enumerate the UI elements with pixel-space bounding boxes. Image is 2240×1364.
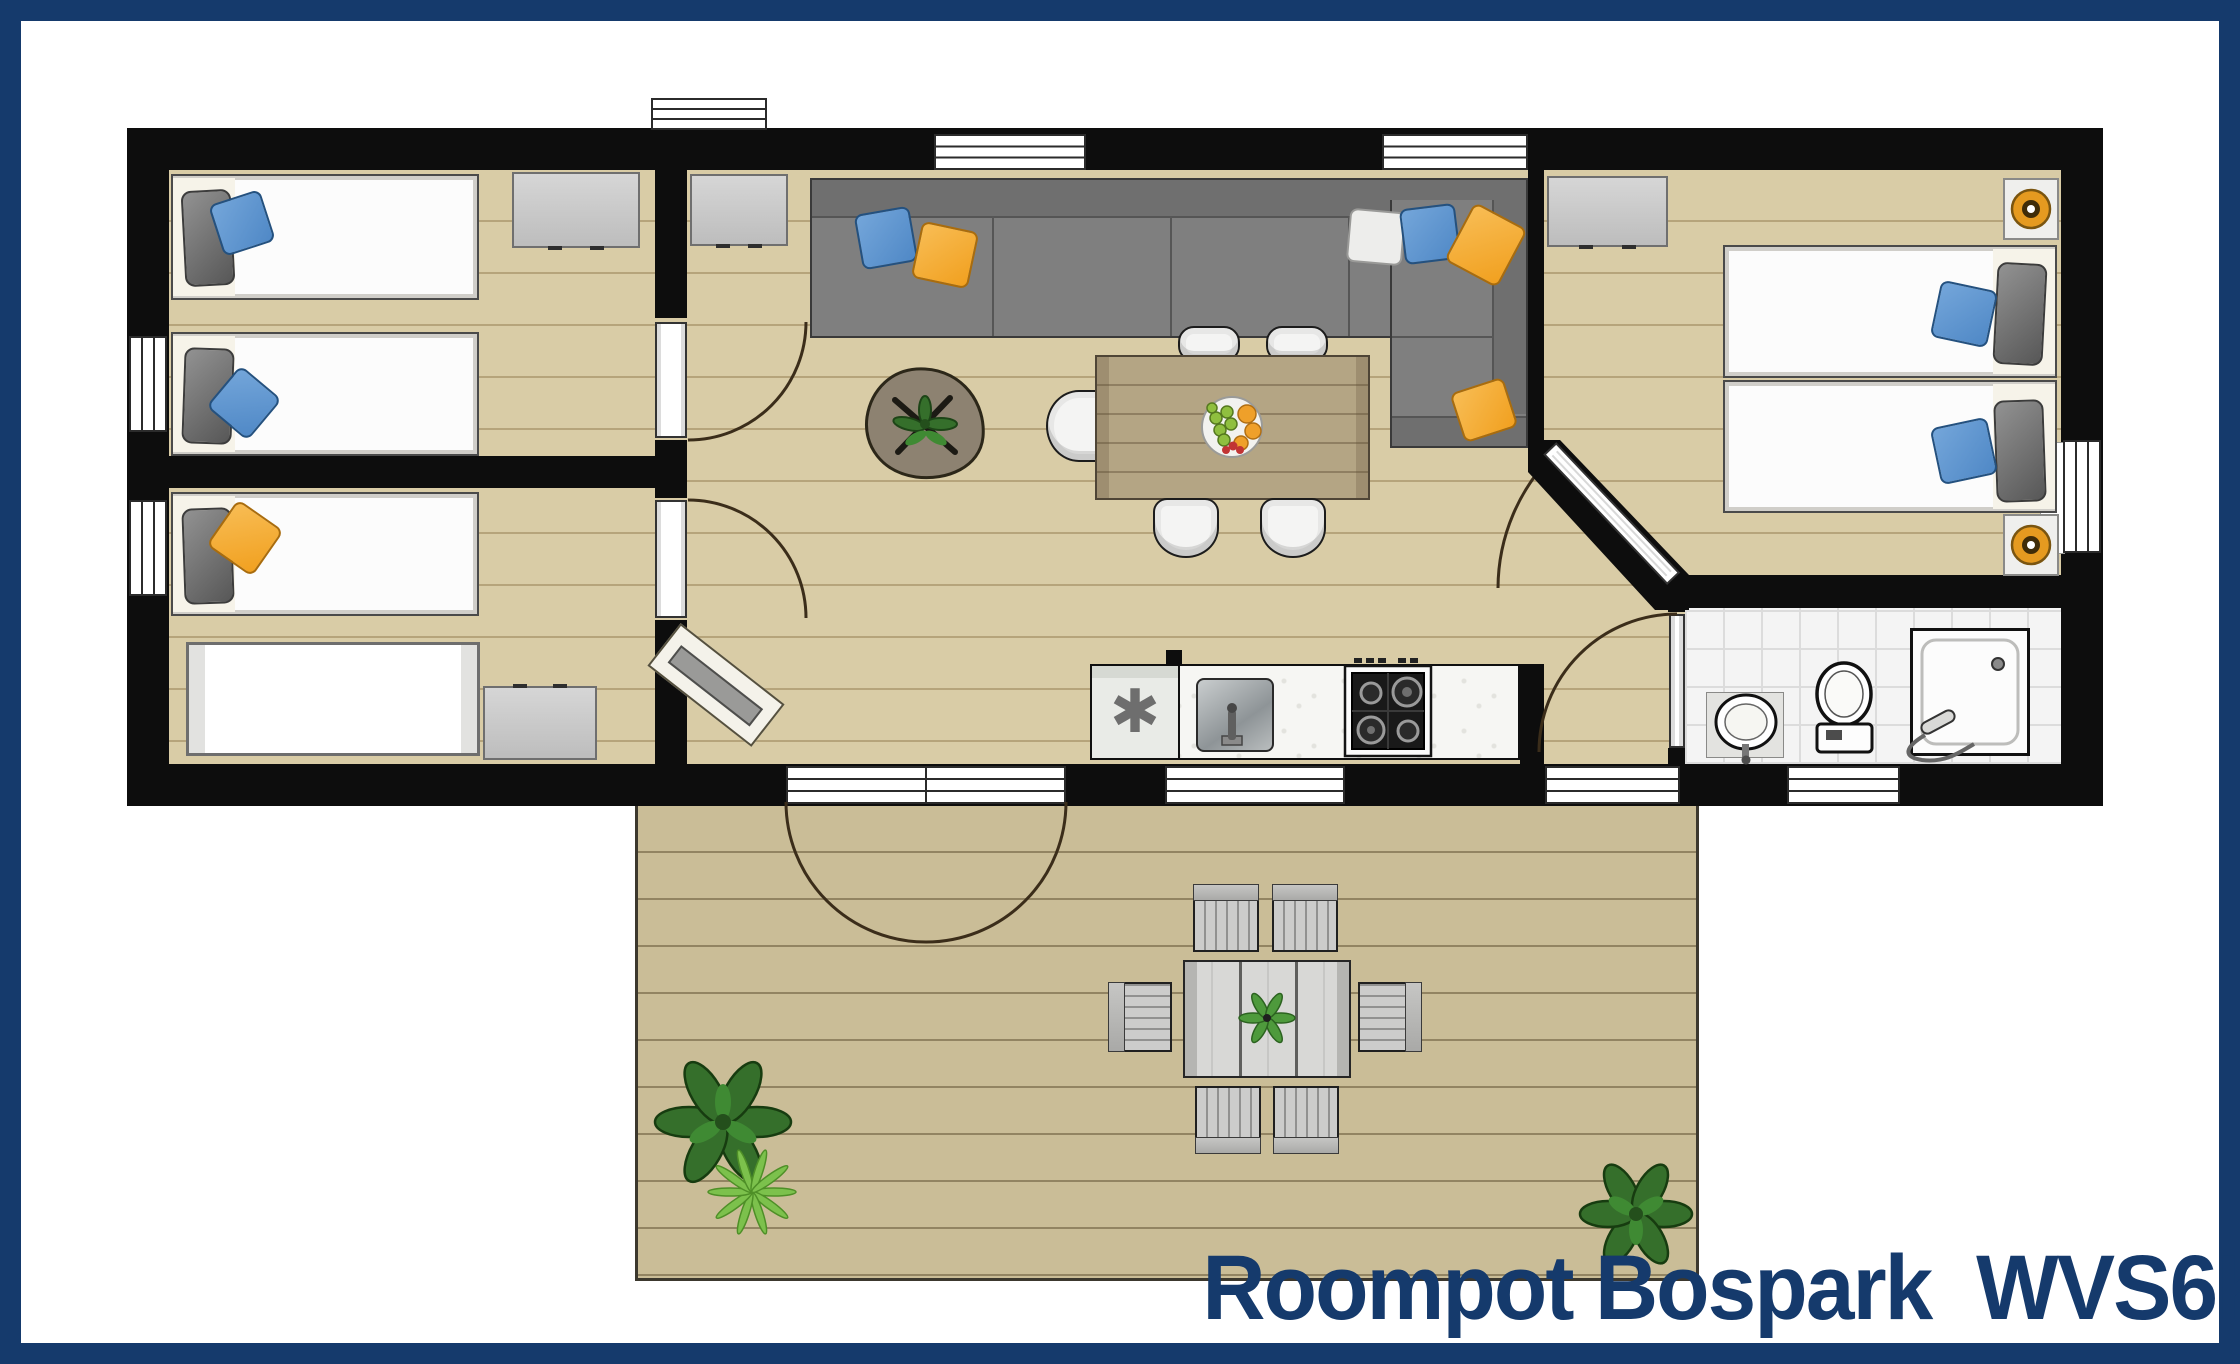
fridge-freezer: ✱: [1092, 666, 1180, 758]
wall-bedrooms-a: [655, 170, 687, 318]
washbasin-counter: [1706, 692, 1784, 758]
baby-cot: [186, 642, 480, 756]
nightstand-top: [2003, 178, 2059, 240]
cushion-blue: [854, 206, 919, 271]
outdoor-chair-bottom2: [1273, 1086, 1339, 1154]
window-bedroom2: [129, 500, 167, 596]
window-bathroom: [1787, 766, 1900, 804]
dresser-bedroom2: [483, 686, 597, 760]
shower: [1910, 628, 2030, 756]
wall-bathroom-jamb-top: [1668, 575, 1685, 612]
page-title: Roompot Bospark WVS6K: [1202, 1242, 2198, 1334]
door-bedroom1: [655, 322, 687, 438]
chair-backrest: [1272, 884, 1338, 901]
cushion-blue: [1930, 280, 1999, 349]
chair-backrest: [1195, 1137, 1261, 1154]
dining-chair-bottom2: [1260, 498, 1326, 558]
outdoor-chair-bottom1: [1195, 1086, 1261, 1154]
wall-bedroom-divider: [169, 456, 687, 488]
window-living-top-right: [1382, 134, 1528, 170]
window-vent-top: [651, 98, 767, 130]
outdoor-chair-top1: [1193, 884, 1259, 952]
bed-single-5: [1723, 380, 2057, 513]
wall-living-bedroom-right: [1528, 170, 1544, 443]
door-bedroom2: [655, 500, 687, 618]
outdoor-chair-left: [1108, 982, 1172, 1052]
bed-single-2: [171, 332, 479, 456]
chair-backrest: [1193, 884, 1259, 901]
dresser-bedroom-right: [1547, 176, 1668, 247]
floorplan-page: ✱: [0, 0, 2240, 1364]
outdoor-chair-right: [1358, 982, 1422, 1052]
dresser-hallway: [690, 174, 788, 246]
wall-kitchen-end: [1520, 664, 1544, 764]
terrace-door-split: [925, 766, 927, 804]
dining-table: [1095, 355, 1370, 500]
kitchen-sink: [1196, 678, 1274, 752]
sleeping-pillow: [1993, 399, 2047, 503]
cushion-white: [1346, 208, 1406, 267]
outdoor-table: [1183, 960, 1351, 1078]
wall-bedroom-bathroom: [1685, 575, 2061, 608]
wall-stub-kitchen: [1166, 650, 1182, 666]
chair-backrest: [1273, 1137, 1339, 1154]
window-living-top: [934, 134, 1086, 170]
chair-backrest: [1405, 982, 1422, 1052]
bed-single-3: [171, 492, 479, 616]
window-hall: [1545, 766, 1680, 804]
nightstand-bottom: [2003, 514, 2059, 576]
dresser-bedroom1: [512, 172, 640, 248]
bed-single-4: [1723, 245, 2057, 378]
freezer-star-icon: ✱: [1110, 677, 1160, 747]
wall-bathroom-jamb-bottom: [1668, 748, 1685, 764]
chair-backrest: [1108, 982, 1125, 1052]
cushion-orange: [911, 221, 980, 290]
door-bathroom: [1669, 614, 1685, 748]
outdoor-chair-top2: [1272, 884, 1338, 952]
sleeping-pillow: [1992, 262, 2047, 366]
window-bedroom1: [129, 336, 167, 432]
cushion-blue: [1930, 417, 1999, 486]
bed-single-1: [171, 174, 479, 300]
window-bedroom-right: [2063, 440, 2101, 553]
window-kitchen: [1165, 766, 1345, 804]
dining-chair-bottom1: [1153, 498, 1219, 558]
